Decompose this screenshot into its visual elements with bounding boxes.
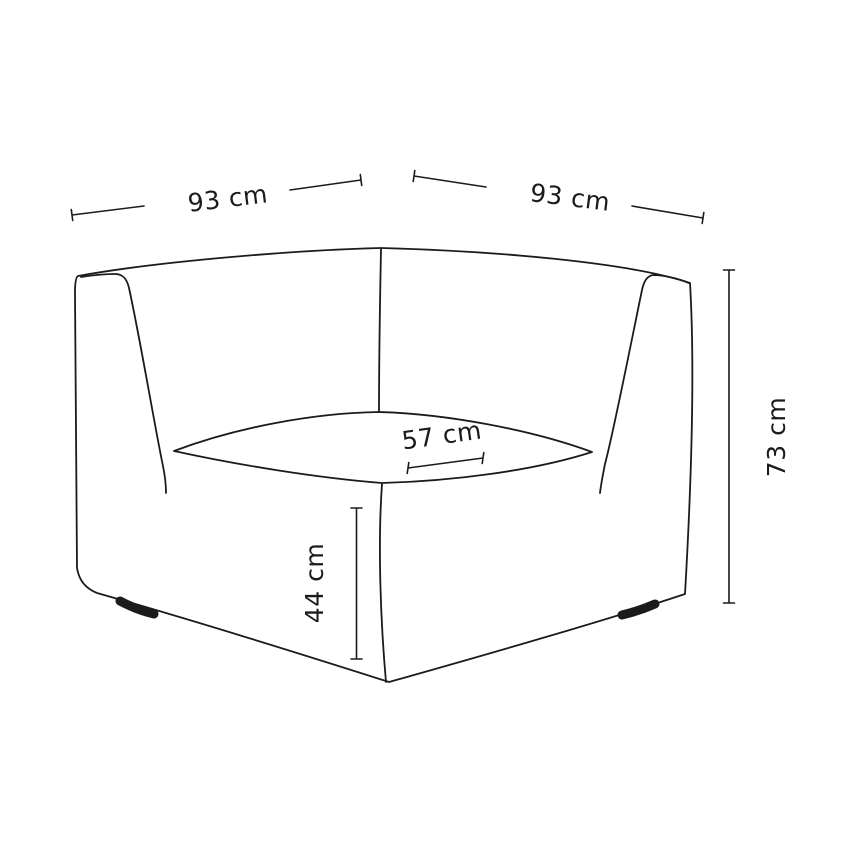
dim-seat-depth-line — [407, 453, 484, 474]
dim-back-width-left-label: 93 cm — [186, 179, 269, 218]
dimension-diagram: 93 cm 93 cm 73 cm 57 cm 44 cm — [0, 0, 858, 858]
dim-back-width-right: 93 cm — [413, 171, 704, 224]
dim-seat-height-label: 44 cm — [300, 543, 329, 623]
dim-seat-height-line — [351, 508, 362, 659]
dim-seat-height: 44 cm — [300, 508, 362, 659]
sofa-outline — [75, 248, 692, 682]
dim-overall-height-line — [724, 270, 735, 603]
front-seam-line — [380, 484, 386, 682]
sofa-drawing — [75, 248, 692, 682]
dim-back-width-right-label: 93 cm — [529, 178, 612, 217]
back-seam-line — [379, 249, 381, 412]
seat-cushion-outline — [174, 412, 592, 483]
right-foot-icon — [622, 604, 655, 615]
dim-seat-depth-label: 57 cm — [400, 416, 484, 456]
dim-back-width-left: 93 cm — [71, 175, 361, 221]
dimension-annotations: 93 cm 93 cm 73 cm 57 cm 44 cm — [71, 171, 791, 659]
dim-overall-height-label: 73 cm — [762, 397, 791, 477]
left-armrest-inner-line — [81, 274, 166, 493]
sofa-dimension-svg: 93 cm 93 cm 73 cm 57 cm 44 cm — [0, 0, 858, 858]
right-armrest-inner-line — [600, 275, 689, 493]
dim-seat-depth: 57 cm — [400, 416, 484, 474]
dim-overall-height: 73 cm — [724, 270, 792, 603]
